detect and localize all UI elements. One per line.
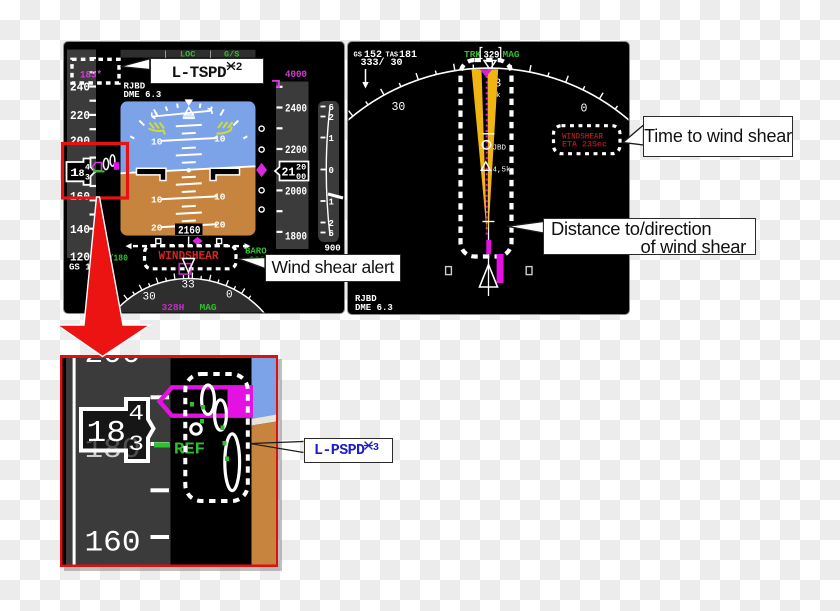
svg-text:333/ 30: 333/ 30 bbox=[361, 57, 403, 69]
svg-text:20: 20 bbox=[214, 220, 226, 231]
svg-text:0: 0 bbox=[581, 103, 588, 116]
svg-text:0: 0 bbox=[329, 166, 334, 176]
svg-text:6: 6 bbox=[329, 229, 334, 239]
svg-text:3: 3 bbox=[85, 174, 90, 183]
svg-text:3: 3 bbox=[129, 432, 145, 457]
svg-text:4000: 4000 bbox=[285, 69, 307, 81]
svg-text:DME 6.3: DME 6.3 bbox=[355, 303, 393, 313]
svg-text:183*: 183* bbox=[80, 69, 102, 81]
svg-text:3: 3 bbox=[373, 441, 379, 452]
svg-text:33: 33 bbox=[182, 280, 195, 292]
svg-text:WINDSHEAR: WINDSHEAR bbox=[159, 249, 220, 263]
svg-text:10: 10 bbox=[214, 134, 226, 145]
svg-text:2200: 2200 bbox=[285, 145, 307, 157]
svg-text:4: 4 bbox=[85, 164, 90, 173]
svg-text:1800: 1800 bbox=[285, 232, 307, 244]
svg-text:2: 2 bbox=[329, 113, 334, 123]
svg-text:30: 30 bbox=[143, 292, 156, 304]
svg-text:k: k bbox=[496, 92, 501, 100]
svg-text:REF: REF bbox=[174, 441, 205, 460]
svg-text:140: 140 bbox=[70, 224, 90, 237]
svg-text:328H: 328H bbox=[162, 302, 185, 313]
svg-text:21: 21 bbox=[282, 167, 296, 180]
svg-text:2160: 2160 bbox=[178, 225, 201, 237]
svg-text:2: 2 bbox=[236, 61, 242, 73]
svg-text:ETA 23Sec: ETA 23Sec bbox=[562, 140, 607, 150]
svg-text:900: 900 bbox=[325, 244, 341, 254]
svg-text:20: 20 bbox=[151, 223, 163, 234]
svg-text:1: 1 bbox=[329, 134, 335, 144]
svg-text:2000: 2000 bbox=[285, 186, 307, 198]
svg-text:DME 6.3: DME 6.3 bbox=[124, 90, 162, 100]
svg-text:4,5k: 4,5k bbox=[493, 167, 512, 175]
svg-text:00: 00 bbox=[296, 172, 306, 182]
svg-text:30: 30 bbox=[392, 101, 406, 114]
svg-text:4: 4 bbox=[129, 402, 145, 427]
svg-text:0: 0 bbox=[226, 289, 233, 301]
svg-text:MAG: MAG bbox=[200, 302, 217, 313]
svg-text:10: 10 bbox=[151, 137, 163, 148]
svg-text:10: 10 bbox=[151, 195, 163, 206]
svg-text:MAG: MAG bbox=[503, 49, 520, 60]
svg-text:1: 1 bbox=[329, 197, 335, 207]
svg-text:10: 10 bbox=[214, 192, 226, 203]
svg-text:2: 2 bbox=[329, 219, 334, 229]
svg-text:8: 8 bbox=[79, 169, 85, 180]
svg-text:18: 18 bbox=[87, 417, 127, 451]
svg-text:JBD: JBD bbox=[493, 145, 507, 153]
svg-text:160: 160 bbox=[85, 527, 141, 561]
svg-text:6: 6 bbox=[329, 103, 334, 113]
svg-text:220: 220 bbox=[70, 110, 90, 123]
svg-text:2400: 2400 bbox=[285, 104, 307, 116]
